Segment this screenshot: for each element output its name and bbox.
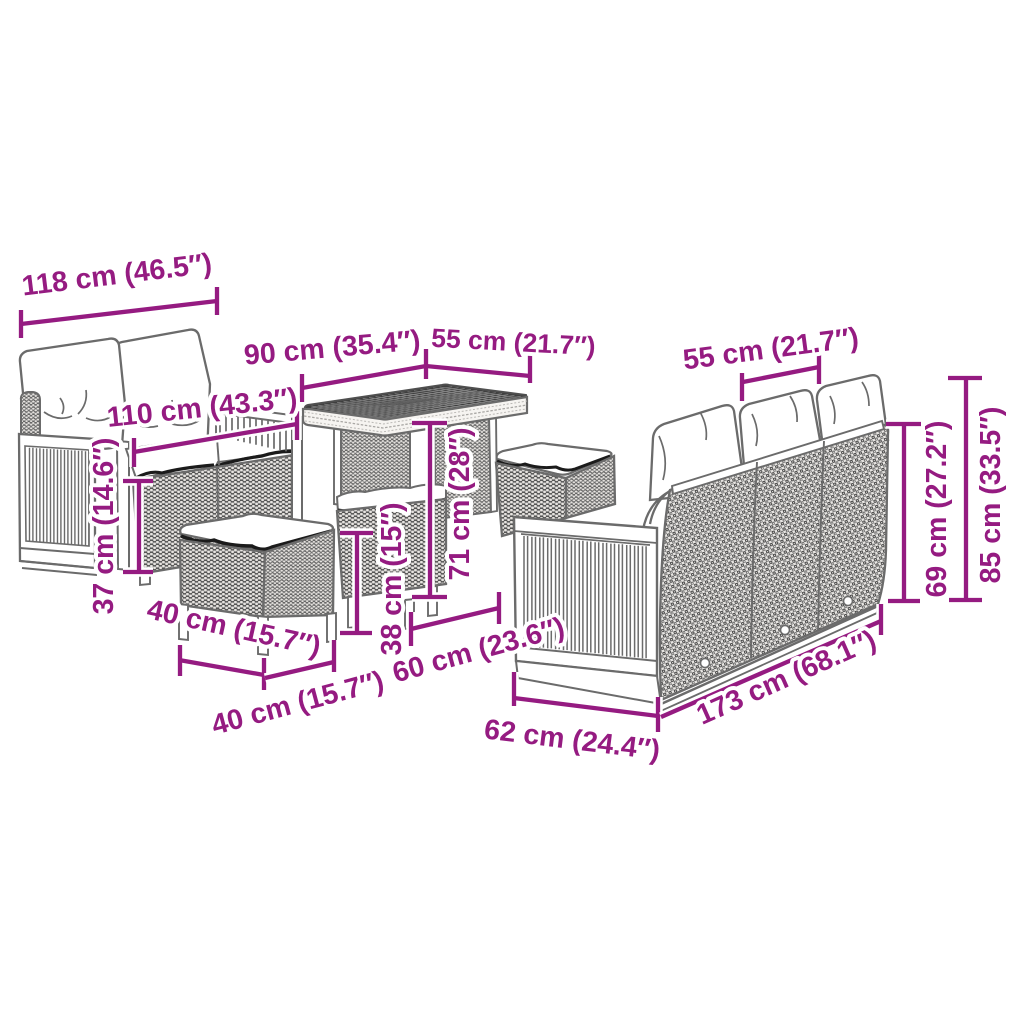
svg-text:38 cm (15″): 38 cm (15″) <box>376 502 408 655</box>
svg-text:37 cm (14.6″): 37 cm (14.6″) <box>88 438 120 615</box>
svg-text:71 cm (28″): 71 cm (28″) <box>444 427 476 580</box>
svg-text:69 cm (27.2″): 69 cm (27.2″) <box>921 421 953 598</box>
svg-text:85 cm (33.5″): 85 cm (33.5″) <box>975 407 1007 584</box>
